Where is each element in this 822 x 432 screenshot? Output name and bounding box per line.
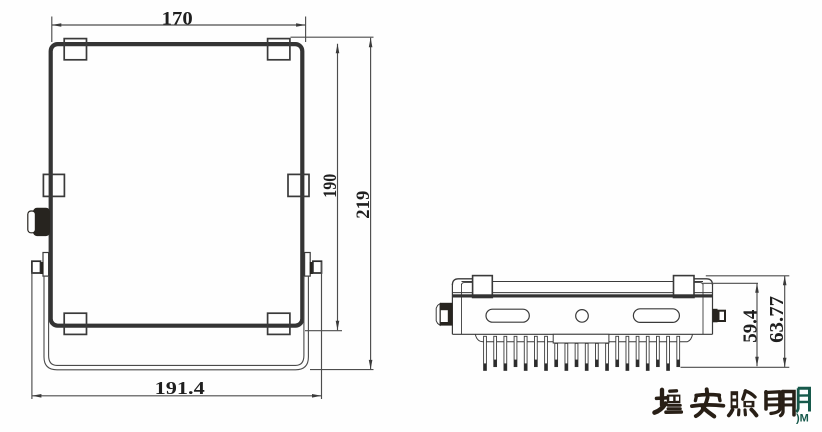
svg-text:63.77: 63.77 <box>766 296 788 343</box>
svg-text:170: 170 <box>162 8 193 29</box>
svg-text:)M: )M <box>796 413 809 425</box>
svg-text:190: 190 <box>321 174 341 198</box>
svg-text:59.4: 59.4 <box>740 310 762 343</box>
svg-text:219: 219 <box>353 191 374 219</box>
svg-text:191.4: 191.4 <box>155 378 205 398</box>
